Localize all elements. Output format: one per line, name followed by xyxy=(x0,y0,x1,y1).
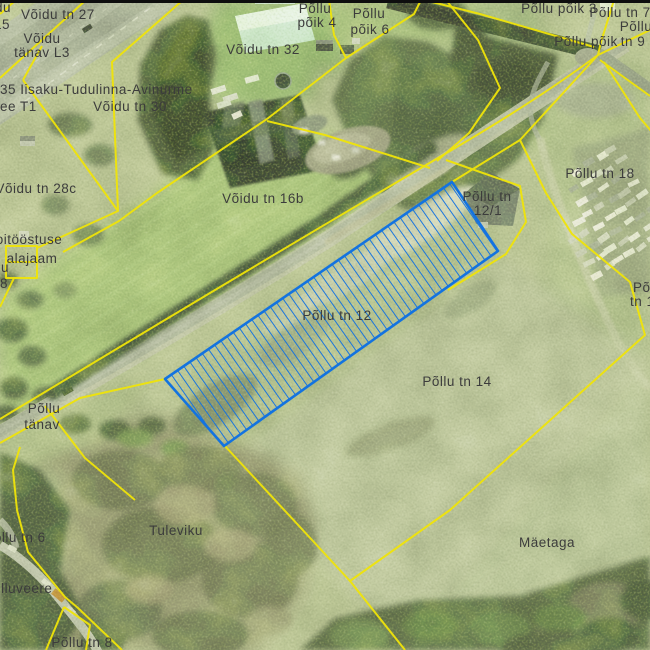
svg-text:Võidu tn 30: Võidu tn 30 xyxy=(93,99,167,114)
svg-text:Põllu: Põllu xyxy=(28,401,61,416)
svg-text:tn 1: tn 1 xyxy=(630,294,650,309)
svg-text:15: 15 xyxy=(0,17,10,32)
svg-text:Põllu põik 3: Põllu põik 3 xyxy=(521,1,597,16)
svg-text:Põ: Põ xyxy=(633,280,650,295)
svg-text:oitööstuse: oitööstuse xyxy=(0,232,62,247)
svg-text:Võidu tn 27: Võidu tn 27 xyxy=(21,7,95,22)
svg-text:Võidu tn 28c: Võidu tn 28c xyxy=(0,181,77,196)
svg-text:Põllu tn 6: Põllu tn 6 xyxy=(0,530,46,545)
svg-text:Põllu: Põllu xyxy=(299,1,332,16)
svg-text:tn 9: tn 9 xyxy=(621,34,646,49)
svg-text:põik 6: põik 6 xyxy=(350,22,389,37)
svg-text:Põllu tn: Põllu tn xyxy=(462,189,511,204)
svg-text:Põllu: Põllu xyxy=(620,19,650,34)
svg-text:Põllu: Põllu xyxy=(353,6,386,21)
svg-text:Tuleviku: Tuleviku xyxy=(149,523,203,538)
svg-text:Võidu: Võidu xyxy=(23,31,60,46)
svg-text:du: du xyxy=(0,260,9,275)
svg-text:põik 4: põik 4 xyxy=(297,15,336,30)
svg-text:tänav: tänav xyxy=(24,417,60,432)
svg-text:Põllu tn 12: Põllu tn 12 xyxy=(302,308,371,323)
svg-text:Võidu tn 32: Võidu tn 32 xyxy=(226,42,300,57)
svg-text:Põllu tn 8: Põllu tn 8 xyxy=(51,635,112,650)
svg-text:12/1: 12/1 xyxy=(474,203,502,218)
svg-text:Põlluveere: Põlluveere xyxy=(0,581,52,596)
svg-text:28: 28 xyxy=(0,276,8,291)
svg-text:35 Iisaku-Tudulinna-Avinurme: 35 Iisaku-Tudulinna-Avinurme xyxy=(0,82,193,97)
svg-text:ee T1: ee T1 xyxy=(0,99,37,114)
svg-text:tänav L3: tänav L3 xyxy=(14,45,70,60)
svg-text:alajaam: alajaam xyxy=(7,251,58,266)
svg-text:Põllu tn 18: Põllu tn 18 xyxy=(565,166,634,181)
svg-text:Põllu põik: Põllu põik xyxy=(554,34,618,49)
svg-text:Mäetaga: Mäetaga xyxy=(519,535,575,550)
svg-text:Põllu tn 7: Põllu tn 7 xyxy=(589,5,650,20)
svg-text:Põllu tn 14: Põllu tn 14 xyxy=(422,374,491,389)
svg-text:Võidu tn 16b: Võidu tn 16b xyxy=(222,191,304,206)
